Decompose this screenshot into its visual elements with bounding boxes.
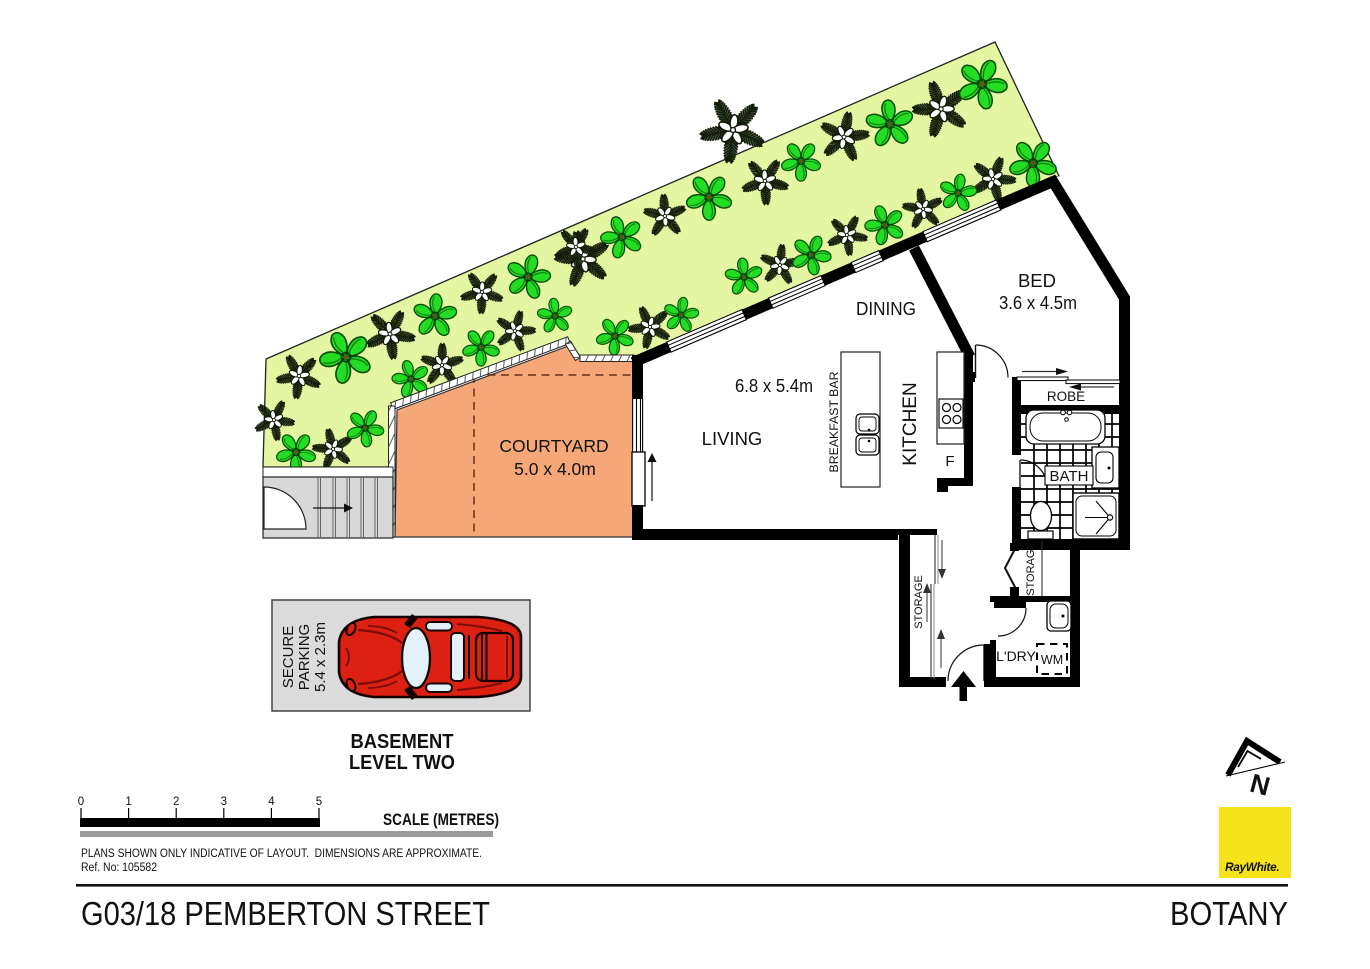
- svg-text:BOTANY: BOTANY: [1170, 895, 1288, 932]
- svg-text:5.4 x 2.3m: 5.4 x 2.3m: [312, 622, 329, 692]
- svg-text:WM: WM: [1041, 653, 1063, 667]
- svg-text:N: N: [1247, 768, 1273, 802]
- svg-text:STORAGE: STORAGE: [913, 575, 925, 629]
- svg-text:5.0 x 4.0m: 5.0 x 4.0m: [514, 459, 596, 479]
- svg-text:PLANS SHOWN ONLY INDICATIVE OF: PLANS SHOWN ONLY INDICATIVE OF LAYOUT. D…: [81, 846, 482, 860]
- svg-text:Ref. No: 105582: Ref. No: 105582: [81, 860, 157, 874]
- svg-text:COURTYARD: COURTYARD: [499, 436, 608, 456]
- svg-text:BREAKFAST BAR: BREAKFAST BAR: [827, 371, 841, 472]
- svg-text:ROBE: ROBE: [1047, 389, 1085, 404]
- svg-text:2: 2: [173, 796, 179, 808]
- svg-text:BATH: BATH: [1050, 468, 1089, 485]
- svg-text:BED: BED: [1018, 270, 1056, 291]
- svg-text:5: 5: [316, 796, 322, 808]
- svg-text:3: 3: [221, 796, 227, 808]
- svg-text:4: 4: [268, 796, 275, 808]
- svg-text:LEVEL TWO: LEVEL TWO: [349, 751, 455, 774]
- svg-text:3.6 x 4.5m: 3.6 x 4.5m: [999, 292, 1077, 313]
- svg-text:RayWhite.: RayWhite.: [1225, 860, 1279, 874]
- svg-text:0: 0: [78, 796, 84, 808]
- svg-text:LIVING: LIVING: [702, 428, 763, 449]
- svg-text:PARKING: PARKING: [296, 624, 313, 690]
- svg-text:L'DRY: L'DRY: [996, 648, 1036, 664]
- svg-text:6.8 x 5.4m: 6.8 x 5.4m: [735, 375, 813, 396]
- svg-text:SECURE: SECURE: [280, 626, 297, 689]
- svg-text:G03/18 PEMBERTON STREET: G03/18 PEMBERTON STREET: [81, 895, 490, 932]
- svg-text:F: F: [945, 453, 954, 470]
- svg-text:DINING: DINING: [856, 298, 916, 319]
- svg-text:STORAGE: STORAGE: [1025, 542, 1037, 596]
- svg-text:KITCHEN: KITCHEN: [900, 382, 921, 465]
- svg-text:BASEMENT: BASEMENT: [351, 730, 454, 753]
- svg-text:SCALE (METRES): SCALE (METRES): [383, 810, 499, 829]
- svg-text:1: 1: [125, 796, 131, 808]
